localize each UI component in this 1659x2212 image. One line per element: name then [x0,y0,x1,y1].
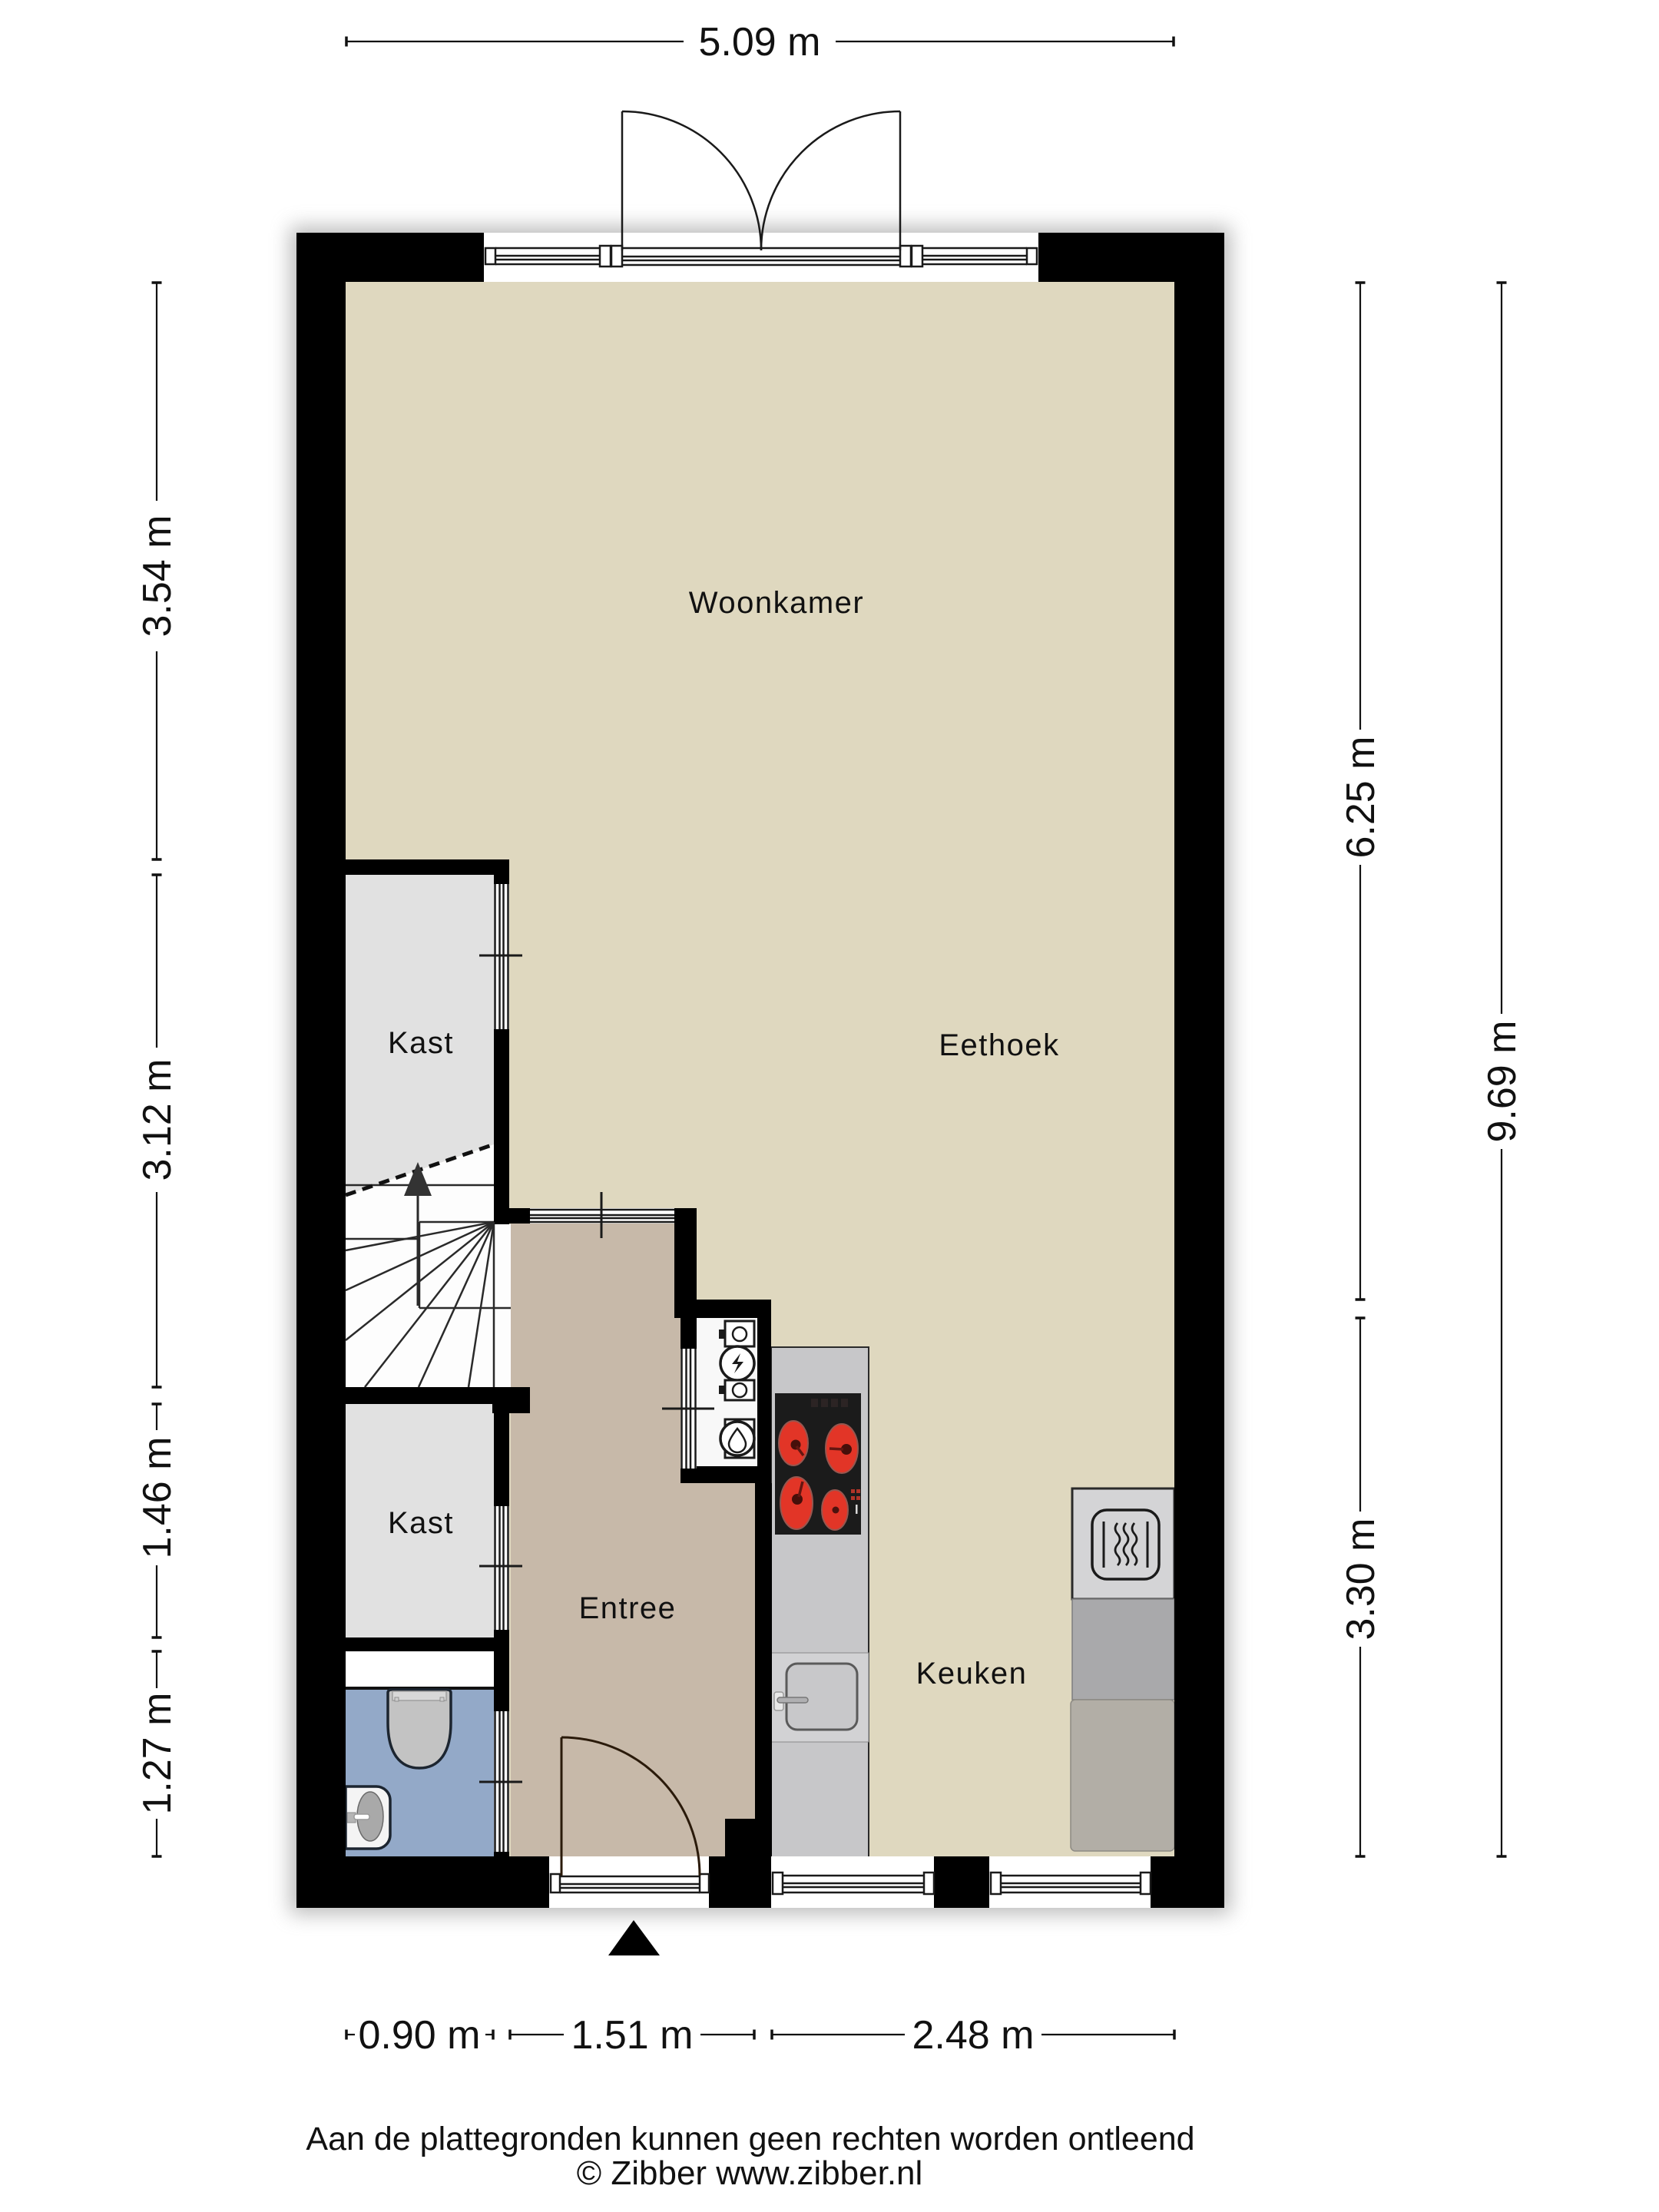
svg-text:3.12 m: 3.12 m [135,1059,180,1181]
svg-text:6.25 m: 6.25 m [1339,737,1383,859]
svg-text:Aan de plattegronden kunnen ge: Aan de plattegronden kunnen geen rechten… [306,2121,1194,2157]
svg-text:Entree: Entree [579,1591,677,1625]
svg-text:3.54 m: 3.54 m [135,515,180,637]
svg-text:3.30 m: 3.30 m [1339,1518,1383,1641]
svg-text:2.48 m: 2.48 m [912,2013,1035,2058]
svg-text:1.27 m: 1.27 m [135,1693,180,1815]
svg-text:0.90 m: 0.90 m [359,2013,481,2058]
svg-text:Keuken: Keuken [916,1657,1028,1690]
svg-text:1.46 m: 1.46 m [135,1437,180,1559]
svg-text:Woonkamer: Woonkamer [689,586,864,620]
svg-text:9.69 m: 9.69 m [1480,1021,1525,1143]
svg-text:Eethoek: Eethoek [939,1028,1059,1062]
svg-text:© Zibber www.zibber.nl: © Zibber www.zibber.nl [577,2154,923,2192]
svg-text:Kast: Kast [388,1026,454,1060]
svg-text:1.51 m: 1.51 m [571,2013,694,2058]
svg-text:5.09 m: 5.09 m [699,20,821,65]
svg-text:Kast: Kast [388,1506,454,1540]
